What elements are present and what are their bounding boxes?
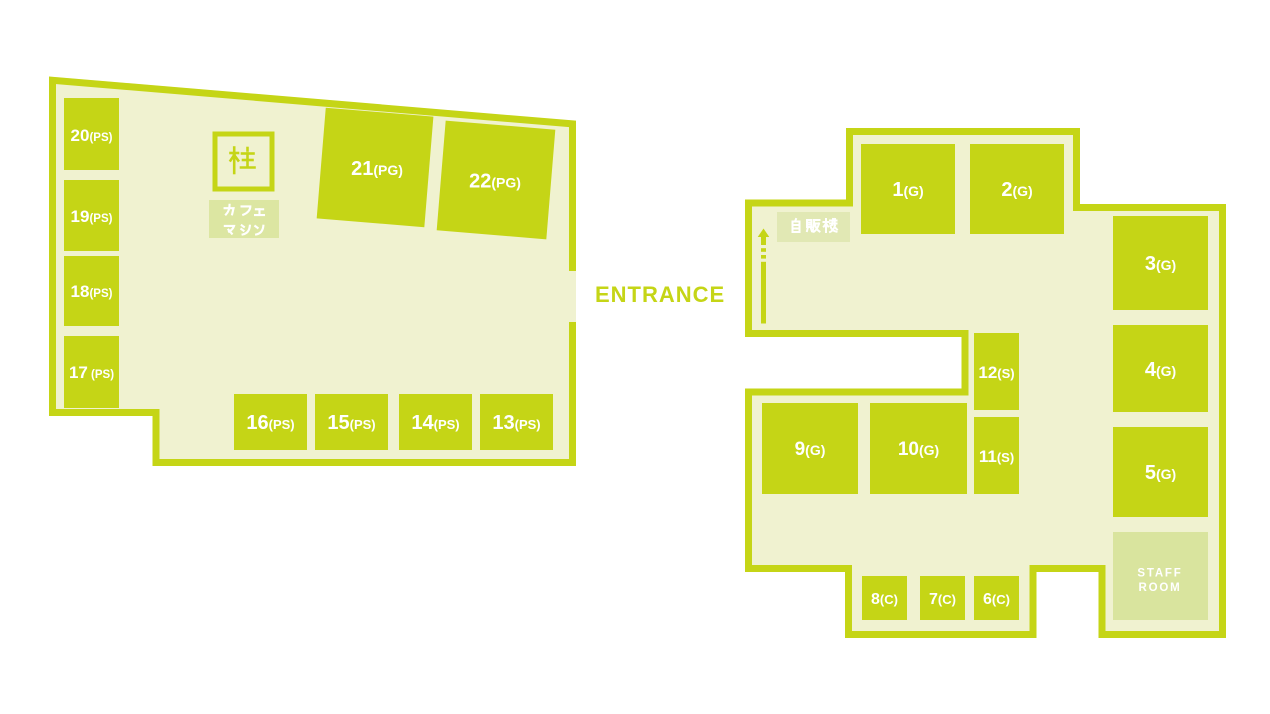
svg-text:ENTRANCE: ENTRANCE <box>595 282 725 307</box>
svg-text:STAFF: STAFF <box>1137 568 1182 580</box>
svg-text:21(PG): 21(PG) <box>351 158 403 180</box>
svg-text:ROOM: ROOM <box>1139 582 1182 594</box>
svg-text:12(S): 12(S) <box>978 363 1014 382</box>
svg-text:4(G): 4(G) <box>1145 359 1176 381</box>
svg-text:10(G): 10(G) <box>898 439 939 460</box>
svg-text:11(S): 11(S) <box>979 447 1014 466</box>
svg-text:5(G): 5(G) <box>1145 462 1176 484</box>
svg-text:6(C): 6(C) <box>983 591 1010 608</box>
svg-text:1(G): 1(G) <box>892 179 923 201</box>
svg-text:9(G): 9(G) <box>795 439 826 460</box>
svg-text:7(C): 7(C) <box>929 591 956 608</box>
svg-text:22(PG): 22(PG) <box>469 171 521 193</box>
svg-text:2(G): 2(G) <box>1001 179 1032 201</box>
svg-text:8(C): 8(C) <box>871 591 898 608</box>
svg-text:3(G): 3(G) <box>1145 253 1176 275</box>
